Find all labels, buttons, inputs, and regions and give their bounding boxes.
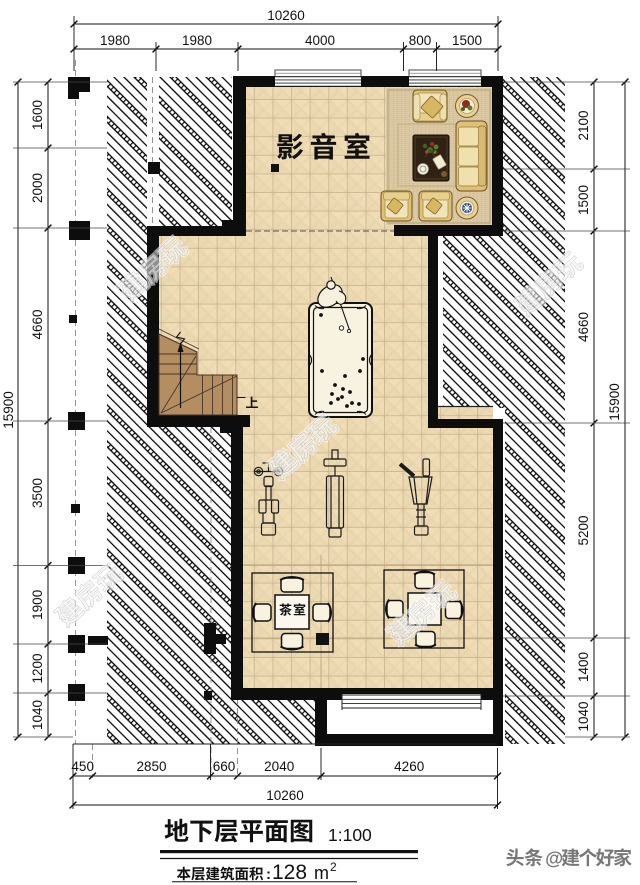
svg-text:10260: 10260 [266,788,304,803]
svg-text:1500: 1500 [452,33,482,48]
svg-text:4260: 4260 [394,759,424,774]
svg-text:1040: 1040 [30,700,45,730]
svg-text:1980: 1980 [182,33,212,48]
svg-text:1200: 1200 [30,653,45,683]
svg-text:1:100: 1:100 [328,825,372,845]
svg-text:4660: 4660 [576,312,591,342]
svg-text:15900: 15900 [607,383,622,421]
svg-text:1400: 1400 [576,652,591,682]
svg-text:2040: 2040 [264,759,294,774]
svg-text:2000: 2000 [30,173,45,203]
svg-text:1980: 1980 [100,33,130,48]
svg-text:3500: 3500 [30,478,45,508]
svg-text:4000: 4000 [305,33,335,48]
svg-text:4660: 4660 [30,309,45,339]
svg-text:m: m [314,863,329,883]
svg-text:15900: 15900 [1,391,16,429]
svg-text:5200: 5200 [576,515,591,545]
svg-text:1900: 1900 [30,590,45,620]
svg-text:450: 450 [71,759,94,774]
svg-text::: : [266,866,271,883]
svg-text:10260: 10260 [267,8,305,23]
svg-text:800: 800 [409,33,432,48]
svg-text:2: 2 [330,860,337,874]
svg-text:1500: 1500 [576,185,591,215]
svg-text:128: 128 [272,861,307,884]
svg-text:1600: 1600 [30,100,45,130]
svg-text:2850: 2850 [136,759,166,774]
svg-text:@: @ [545,848,563,869]
svg-text:660: 660 [213,759,236,774]
svg-text:1040: 1040 [576,701,591,731]
svg-text:2100: 2100 [576,110,591,140]
